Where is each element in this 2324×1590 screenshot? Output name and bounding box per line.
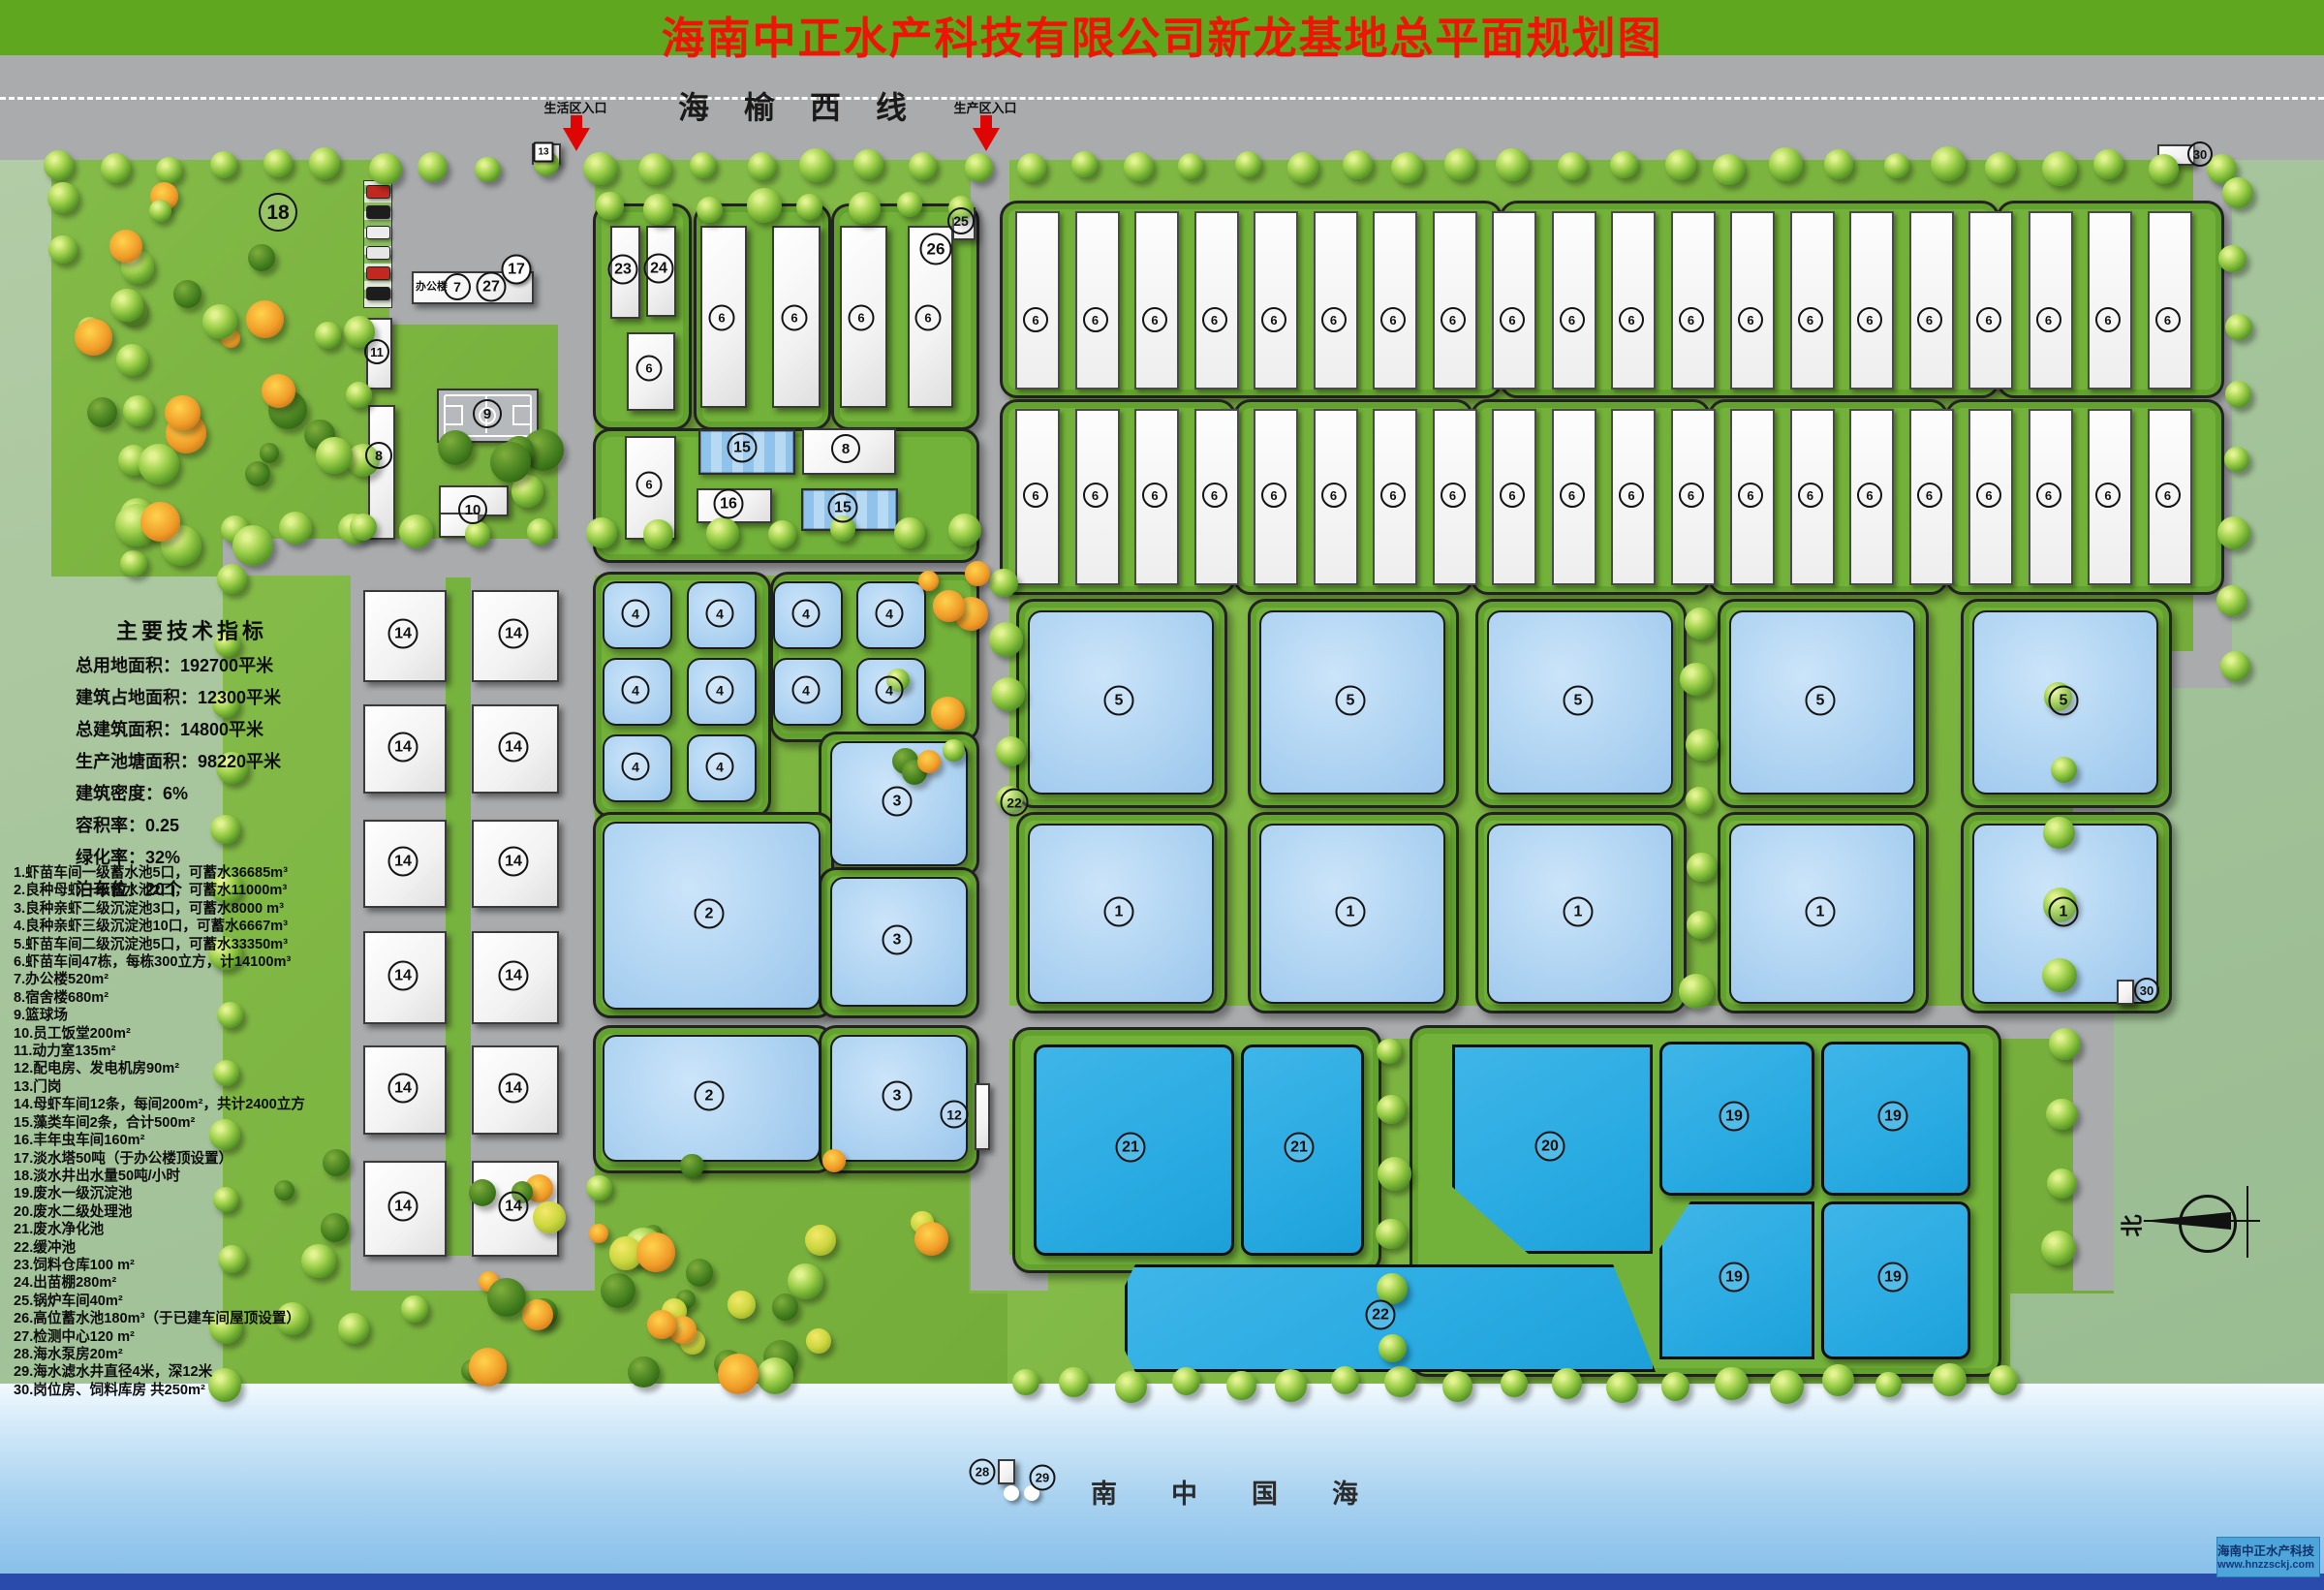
tree-icon — [533, 1201, 565, 1233]
marker-6: 6 — [709, 305, 735, 331]
tree-icon — [1377, 1095, 1406, 1124]
tree-icon — [350, 514, 377, 541]
tree-icon — [116, 344, 148, 376]
marker-9: 9 — [473, 399, 502, 428]
marker-14: 14 — [388, 1074, 418, 1104]
tree-icon — [1379, 1334, 1407, 1362]
legend-item: 22.缓冲池 — [14, 1239, 343, 1257]
marker-6: 6 — [2155, 483, 2181, 508]
marker-1: 1 — [1564, 897, 1594, 927]
marker-15: 15 — [728, 433, 758, 463]
tree-icon — [156, 157, 182, 183]
tree-icon — [805, 1225, 836, 1256]
tree-icon — [1824, 149, 1854, 179]
marker-6: 6 — [1738, 483, 1763, 508]
tree-icon — [718, 1354, 759, 1394]
tree-icon — [87, 397, 117, 427]
tree-icon — [772, 1294, 798, 1320]
marker-14: 14 — [499, 1074, 529, 1104]
marker-6: 6 — [1857, 483, 1882, 508]
marker-6: 6 — [1500, 307, 1525, 332]
indicator-line: 总用地面积：192700平米 — [76, 652, 366, 677]
tree-icon — [894, 517, 925, 548]
tree-icon — [2042, 151, 2077, 186]
site-plan-canvas: 海南中正水产科技有限公司新龙基地总平面规划图 海榆西线 生活区入口 生产区入口 … — [0, 0, 2324, 1590]
marker-6: 6 — [1142, 483, 1167, 508]
legend-item: 2.良种母虾一级蓄水池2口，可蓄水11000m³ — [14, 882, 343, 899]
tree-icon — [933, 590, 965, 622]
marker-29: 29 — [1030, 1465, 1056, 1491]
tree-icon — [279, 512, 312, 545]
tree-icon — [680, 1154, 704, 1178]
legend-item: 27.检测中心120 m² — [14, 1328, 343, 1346]
tree-icon — [1172, 1367, 1200, 1395]
tree-icon — [1331, 1366, 1359, 1394]
marker-6: 6 — [1679, 307, 1704, 332]
legend-item: 6.虾苗车间47栋，每栋300立方，计14100m³ — [14, 953, 343, 971]
tree-icon — [2224, 447, 2249, 472]
tree-icon — [260, 443, 280, 463]
tree-icon — [2220, 651, 2250, 681]
marker-6: 6 — [636, 472, 663, 498]
tree-icon — [1376, 1219, 1406, 1249]
tree-icon — [909, 152, 937, 180]
marker-6: 6 — [1083, 483, 1108, 508]
legend-item: 29.海水滤水井直径4米，深12米 — [14, 1363, 343, 1381]
marker-25: 25 — [947, 207, 975, 234]
tree-icon — [123, 395, 154, 426]
parked-car — [366, 226, 390, 239]
legend-item: 24.出苗棚280m² — [14, 1274, 343, 1292]
shrimp-workshop-strip-r1-5 — [1254, 211, 1298, 390]
tree-icon — [1275, 1369, 1307, 1401]
tree-icon — [638, 153, 670, 185]
tree-icon — [2222, 177, 2254, 209]
tree-icon — [806, 1328, 831, 1354]
marker-6: 6 — [1560, 307, 1585, 332]
marker-3: 3 — [883, 787, 913, 817]
tree-icon — [748, 152, 776, 180]
road-vertical-west — [558, 157, 595, 1291]
parking-strip — [363, 180, 392, 308]
tree-icon — [2042, 958, 2077, 993]
marker-5: 5 — [2049, 686, 2079, 716]
tree-icon — [1875, 1372, 1901, 1397]
legend-item: 12.配电房、发电机房90m² — [14, 1060, 343, 1077]
entrance-right-label: 生产区入口 — [953, 98, 1016, 116]
marker-6: 6 — [1917, 483, 1942, 508]
shrimp-workshop-strip-r1-17 — [1968, 211, 2013, 390]
marker-6: 6 — [1083, 307, 1108, 332]
shrimp-workshop-strip-r1-3 — [1134, 211, 1179, 390]
marker-4: 4 — [792, 600, 821, 628]
legend-item: 21.废水净化池 — [14, 1221, 343, 1238]
tree-icon — [601, 1273, 635, 1308]
tree-icon — [401, 1295, 427, 1322]
shrimp-workshop-strip-r1-11 — [1611, 211, 1656, 390]
tree-icon — [2049, 1028, 2081, 1060]
tree-icon — [1822, 1364, 1854, 1396]
marker-18: 18 — [259, 193, 297, 232]
tree-icon — [2216, 585, 2247, 616]
indicator-line: 建筑密度：6% — [76, 780, 366, 805]
tree-icon — [1552, 1368, 1582, 1398]
marker-6: 6 — [1976, 307, 2001, 332]
tree-icon — [165, 395, 201, 431]
tree-icon — [469, 1348, 507, 1386]
tree-icon — [248, 244, 275, 271]
marker-6: 6 — [1619, 307, 1644, 332]
tree-icon — [469, 1179, 496, 1206]
marker-13: 13 — [534, 142, 554, 163]
tree-icon — [1501, 1370, 1527, 1396]
tree-icon — [799, 148, 833, 182]
tree-icon — [120, 550, 146, 577]
tree-icon — [210, 151, 237, 178]
tree-icon — [1496, 148, 1529, 181]
tree-icon — [263, 149, 293, 178]
legend-item: 14.母虾车间12条，每间200m²，共计2400立方 — [14, 1096, 343, 1113]
tree-icon — [1884, 153, 1909, 178]
tree-icon — [1287, 152, 1318, 183]
legend-item: 18.淡水井出水量50吨/小时 — [14, 1168, 343, 1185]
tree-icon — [931, 697, 965, 731]
tree-icon — [2046, 1099, 2077, 1130]
tree-icon — [316, 437, 353, 474]
marker-6: 6 — [1023, 483, 1048, 508]
tree-icon — [943, 739, 964, 761]
marker-4: 4 — [706, 753, 734, 781]
tree-icon — [1931, 146, 1966, 181]
tree-icon — [139, 444, 179, 484]
marker-6: 6 — [636, 356, 663, 382]
tree-icon — [1378, 1157, 1411, 1191]
marker-12: 12 — [941, 1101, 969, 1129]
marker-6: 6 — [2095, 483, 2121, 508]
tree-icon — [2051, 757, 2077, 783]
tree-icon — [583, 152, 617, 186]
marker-6: 6 — [849, 305, 875, 331]
tree-icon — [636, 1232, 675, 1271]
legend-item: 5.虾苗车间二级沉淀池5口，可蓄水33350m³ — [14, 936, 343, 953]
tree-icon — [596, 192, 623, 219]
marker-19: 19 — [1878, 1263, 1908, 1293]
marker-14: 14 — [388, 961, 418, 991]
tree-icon — [75, 319, 111, 356]
shrimp-workshop-strip-r1-2 — [1075, 211, 1120, 390]
legend-item: 13.门岗 — [14, 1078, 343, 1096]
legend-item: 25.锅炉车间40m² — [14, 1293, 343, 1310]
shrimp-workshop-strip-r1-12 — [1671, 211, 1716, 390]
tree-icon — [1687, 853, 1716, 882]
marker-6: 6 — [1321, 307, 1347, 332]
mother-shrimp-median-lawn — [446, 577, 471, 1256]
marker-14: 14 — [499, 733, 529, 763]
legend-panel: 1.虾苗车间一级蓄水池5口，可蓄水36685m³2.良种母虾一级蓄水池2口，可蓄… — [14, 864, 343, 1399]
shrimp-workshop-strip-r1-13 — [1730, 211, 1775, 390]
sea-name-label: 南中国海 — [1091, 1473, 1412, 1511]
marker-6: 6 — [1738, 307, 1763, 332]
marker-15: 15 — [828, 493, 858, 523]
legend-item: 8.宿舍楼680m² — [14, 989, 343, 1007]
tree-icon — [697, 197, 723, 223]
marker-6: 6 — [1441, 307, 1466, 332]
marker-20: 20 — [1535, 1132, 1565, 1162]
marker-4: 4 — [622, 676, 650, 704]
shrimp-workshop-strip-r1-7 — [1373, 211, 1417, 390]
tree-icon — [686, 1259, 713, 1286]
legend-item: 3.良种亲虾二级沉淀池3口，可蓄水8000 m³ — [14, 900, 343, 918]
tree-icon — [917, 750, 941, 773]
marker-1: 1 — [1336, 897, 1366, 927]
marker-30: 30 — [2187, 141, 2213, 167]
marker-6: 6 — [1679, 483, 1704, 508]
tree-icon — [246, 300, 284, 338]
shrimp-workshop-strip-r1-4 — [1194, 211, 1239, 390]
marker-4: 4 — [706, 600, 734, 628]
tree-icon — [853, 149, 883, 179]
legend-item: 11.动力室135m² — [14, 1043, 343, 1060]
tree-icon — [768, 520, 796, 548]
marker-5: 5 — [1104, 686, 1134, 716]
marker-6: 6 — [1202, 483, 1227, 508]
tree-icon — [1680, 663, 1713, 696]
marker-1: 1 — [1806, 897, 1836, 927]
tree-icon — [1661, 1372, 1689, 1400]
tree-icon — [2149, 154, 2179, 184]
legend-item: 17.淡水塔50吨（于办公楼顶设置） — [14, 1150, 343, 1168]
marker-4: 4 — [706, 676, 734, 704]
generator-room-building — [975, 1083, 990, 1150]
company-logo: 海南中正水产科技 www.hnzzsckj.com — [2216, 1537, 2320, 1577]
marker-4: 4 — [622, 753, 650, 781]
marker-19: 19 — [1720, 1263, 1750, 1293]
marker-6: 6 — [1441, 483, 1466, 508]
parked-car — [366, 205, 390, 219]
marker-1: 1 — [1104, 897, 1134, 927]
tree-icon — [643, 194, 674, 225]
tree-icon — [202, 304, 237, 339]
tree-icon — [527, 518, 554, 546]
tree-icon — [48, 235, 77, 264]
tree-icon — [369, 153, 401, 185]
tree-icon — [110, 289, 143, 322]
marker-26: 26 — [920, 234, 952, 265]
parked-car — [366, 246, 390, 260]
legend-item: 23.饲料仓库100 m² — [14, 1257, 343, 1274]
tree-icon — [1115, 1371, 1147, 1403]
logo-website: www.hnzzsckj.com — [2217, 1559, 2314, 1571]
marker-6: 6 — [1619, 483, 1644, 508]
marker-5: 5 — [1806, 686, 1836, 716]
indicator-line: 容积率：0.25 — [76, 812, 366, 837]
marker-6: 6 — [782, 305, 808, 331]
marker-14: 14 — [388, 1192, 418, 1222]
marker-14: 14 — [499, 1192, 529, 1222]
marker-27: 27 — [477, 272, 507, 302]
compass-north-label: 北 — [2114, 1215, 2147, 1237]
marker-6: 6 — [1321, 483, 1347, 508]
tree-icon — [796, 194, 822, 220]
legend-item: 10.员工饭堂200m² — [14, 1025, 343, 1043]
tree-icon — [346, 382, 372, 408]
tree-icon — [315, 322, 342, 349]
marker-21: 21 — [1116, 1133, 1146, 1163]
marker-21: 21 — [1285, 1133, 1315, 1163]
tree-icon — [914, 1222, 948, 1256]
tree-icon — [849, 192, 881, 224]
entrance-right-arrow-icon — [973, 128, 1000, 151]
shrimp-workshop-strip-r1-18 — [2029, 211, 2073, 390]
tree-icon — [217, 564, 247, 594]
tree-icon — [232, 525, 273, 566]
legend-item: 20.废水二级处理池 — [14, 1203, 343, 1221]
tree-icon — [1606, 1372, 1637, 1403]
tree-icon — [2217, 516, 2250, 549]
entrance-left-arrow-icon — [563, 128, 590, 151]
tree-icon — [245, 461, 270, 486]
marker-4: 4 — [876, 676, 904, 704]
marker-14: 14 — [499, 847, 529, 877]
marker-6: 6 — [1798, 483, 1823, 508]
tree-icon — [309, 147, 341, 179]
marker-22: 22 — [1001, 789, 1029, 817]
tree-icon — [2225, 314, 2252, 341]
marker-4: 4 — [622, 600, 650, 628]
marker-4: 4 — [876, 600, 904, 628]
marker-6: 6 — [1380, 483, 1406, 508]
tree-icon — [1679, 974, 1713, 1008]
shrimp-workshop-strip-r1-9 — [1492, 211, 1536, 390]
tree-icon — [989, 622, 1024, 657]
marker-5: 5 — [1336, 686, 1366, 716]
tree-icon — [2218, 245, 2247, 273]
shrimp-workshop-strip-r1-19 — [2088, 211, 2132, 390]
tree-icon — [1442, 1371, 1472, 1401]
marker-6: 6 — [1560, 483, 1585, 508]
marker-2: 2 — [695, 1081, 725, 1111]
sea-pump-house — [998, 1459, 1015, 1484]
marker-6: 6 — [2036, 307, 2061, 332]
tree-icon — [1933, 1363, 1966, 1396]
marker-6: 6 — [1261, 483, 1286, 508]
entrance-left-label: 生活区入口 — [543, 98, 606, 116]
entrance-right-arrow-stem — [980, 115, 992, 128]
marker-6: 6 — [1976, 483, 2001, 508]
parked-car — [366, 185, 390, 199]
indicator-line: 建筑占地面积：12300平米 — [76, 684, 366, 709]
legend-item: 19.废水一级沉淀池 — [14, 1185, 343, 1202]
legend-item: 16.丰年虫车间160m² — [14, 1132, 343, 1149]
tree-icon — [1769, 147, 1802, 180]
tree-icon — [728, 1291, 756, 1319]
marker-14: 14 — [499, 961, 529, 991]
legend-item: 1.虾苗车间一级蓄水池5口，可蓄水36685m³ — [14, 864, 343, 882]
marker-11: 11 — [364, 339, 389, 364]
indicators-title: 主要技术指标 — [116, 614, 366, 645]
tree-icon — [1444, 148, 1475, 179]
marker-14: 14 — [388, 733, 418, 763]
tree-icon — [989, 569, 1017, 597]
marker-14: 14 — [388, 619, 418, 649]
tree-icon — [2225, 381, 2252, 408]
shrimp-workshop-strip-r1-15 — [1849, 211, 1894, 390]
tree-icon — [628, 1356, 660, 1388]
marker-6: 6 — [915, 305, 942, 331]
parked-car — [366, 266, 390, 280]
legend-item: 4.良种亲虾三级沉淀池10口，可蓄水6667m³ — [14, 918, 343, 935]
marker-6: 6 — [1917, 307, 1942, 332]
marker-30: 30 — [2134, 978, 2159, 1003]
tree-icon — [2047, 1169, 2077, 1199]
legend-item: 9.篮球场 — [14, 1007, 343, 1024]
shrimp-workshop-strip-r1-6 — [1314, 211, 1358, 390]
marker-19: 19 — [1878, 1102, 1908, 1132]
marker-14: 14 — [388, 847, 418, 877]
tree-icon — [1558, 152, 1587, 181]
marker-6: 6 — [1500, 483, 1525, 508]
tree-icon — [586, 1175, 611, 1200]
shrimp-workshop-strip-r1-8 — [1433, 211, 1477, 390]
marker-16: 16 — [714, 489, 744, 519]
marker-6: 6 — [2095, 307, 2121, 332]
plan-title: 海南中正水产科技有限公司新龙基地总平面规划图 — [661, 3, 1662, 66]
shrimp-workshop-strip-r1-16 — [1909, 211, 1954, 390]
tree-icon — [1985, 152, 2016, 183]
shrimp-workshop-strip-r1-10 — [1552, 211, 1596, 390]
marker-7: 7 — [444, 273, 471, 300]
marker-28: 28 — [970, 1459, 996, 1485]
marker-6: 6 — [2155, 307, 2181, 332]
tree-icon — [2043, 817, 2075, 849]
sea-filter-well-1 — [1004, 1485, 1019, 1501]
tree-icon — [1989, 1365, 2018, 1394]
shrimp-workshop-strip-r1-20 — [2148, 211, 2192, 390]
marker-6: 6 — [1798, 307, 1823, 332]
technical-indicators-panel: 主要技术指标 总用地面积：192700平米建筑占地面积：12300平米总建筑面积… — [76, 614, 366, 901]
marker-6: 6 — [1261, 307, 1286, 332]
indicator-line: 总建筑面积：14800平米 — [76, 716, 366, 741]
legend-item: 26.高位蓄水池180m³（于已建车间屋顶设置） — [14, 1310, 343, 1327]
marker-6: 6 — [1142, 307, 1167, 332]
indicator-line: 生产池塘面积：98220平米 — [76, 748, 366, 773]
tree-icon — [706, 517, 739, 550]
tree-icon — [47, 182, 78, 213]
legend-item: 15.藻类车间2条，合计500m² — [14, 1114, 343, 1132]
marker-24: 24 — [644, 254, 674, 284]
compass-north-icon: 北 — [2124, 1188, 2279, 1265]
sea-bottom-band — [0, 1574, 2324, 1590]
post-house-east — [2117, 980, 2134, 1005]
marker-19: 19 — [1720, 1102, 1750, 1132]
marker-8: 8 — [831, 434, 860, 463]
tree-icon — [1017, 153, 1046, 182]
marker-22: 22 — [1366, 1300, 1396, 1330]
tree-icon — [173, 280, 201, 307]
marker-3: 3 — [883, 1081, 913, 1111]
marker-23: 23 — [608, 255, 638, 285]
tree-icon — [1059, 1367, 1089, 1397]
tree-icon — [647, 1310, 676, 1339]
tree-icon — [1343, 150, 1373, 180]
main-road — [0, 55, 2324, 160]
road-centerline — [0, 97, 2324, 100]
entrance-left-arrow-stem — [571, 115, 582, 128]
tree-icon — [1384, 1366, 1415, 1397]
marker-2: 2 — [695, 899, 725, 929]
marker-14: 14 — [499, 619, 529, 649]
tree-icon — [1770, 1370, 1804, 1404]
